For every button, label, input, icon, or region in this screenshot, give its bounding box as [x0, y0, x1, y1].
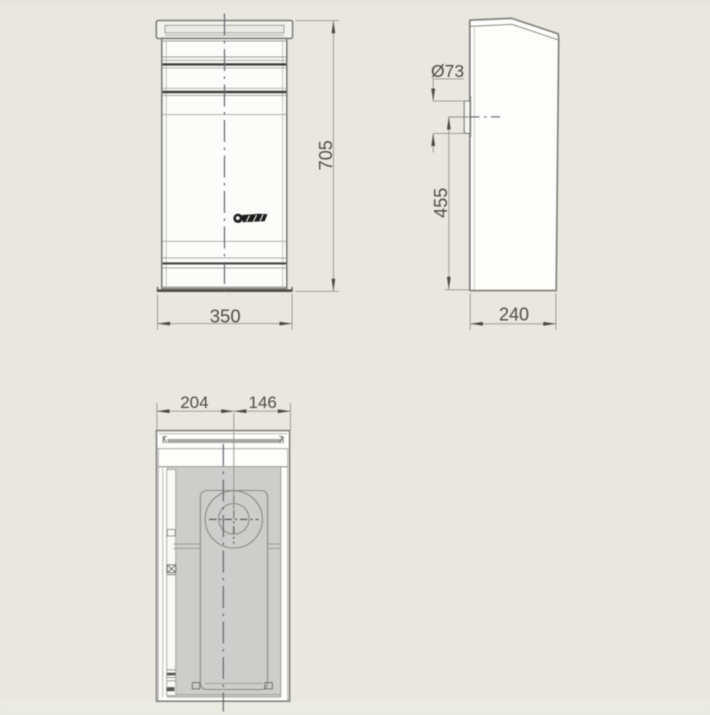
svg-text:240: 240	[499, 304, 529, 324]
svg-text:350: 350	[210, 305, 241, 326]
svg-text:146: 146	[249, 393, 277, 412]
svg-text:705: 705	[316, 140, 336, 170]
svg-text:Ø73: Ø73	[431, 61, 464, 81]
svg-text:455: 455	[431, 188, 451, 218]
svg-text:204: 204	[180, 393, 208, 412]
